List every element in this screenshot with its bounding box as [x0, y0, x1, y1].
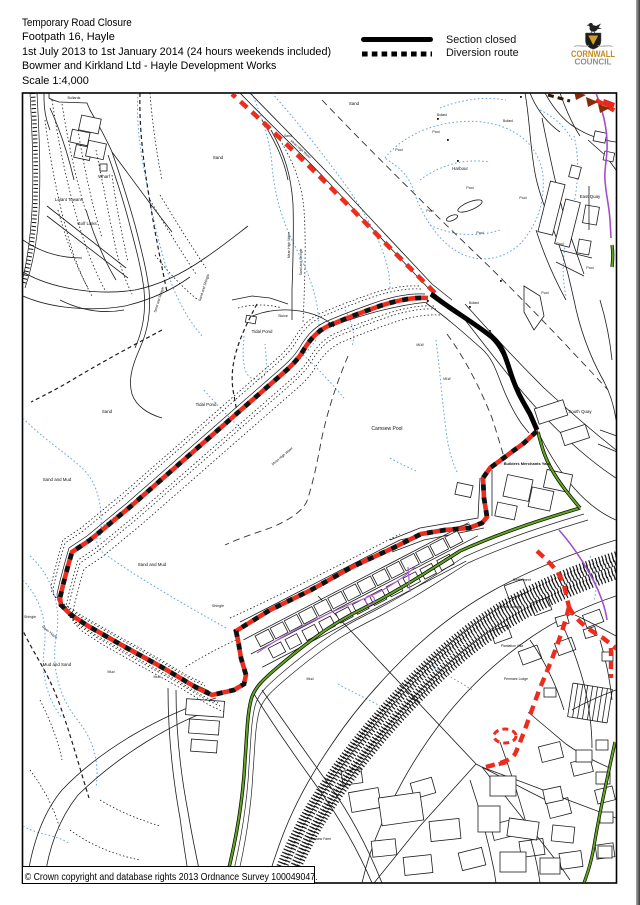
svg-text:Sand and Mud: Sand and Mud: [138, 562, 167, 567]
svg-text:Sand: Sand: [213, 155, 224, 160]
svg-text:Tidal Pond: Tidal Pond: [196, 402, 217, 407]
svg-text:South Quay: South Quay: [568, 409, 592, 414]
svg-text:Sluice: Sluice: [278, 314, 288, 318]
svg-text:Mud and Sand: Mud and Sand: [43, 662, 72, 667]
svg-text:Sand: Sand: [284, 134, 292, 138]
svg-text:Sand and Shingle: Sand and Shingle: [299, 249, 303, 276]
svg-text:Settlement: Settlement: [513, 578, 532, 582]
svg-text:Pool: Pool: [541, 291, 548, 295]
svg-text:Tidal Pond: Tidal Pond: [252, 329, 273, 334]
svg-text:MLW: MLW: [416, 343, 423, 347]
svg-text:MLW: MLW: [443, 377, 450, 381]
svg-text:Pool: Pool: [586, 266, 593, 270]
svg-text:Shingle: Shingle: [24, 615, 36, 619]
svg-text:Mud: Mud: [154, 675, 161, 679]
svg-text:Sand: Sand: [102, 409, 113, 414]
svg-text:Pool: Pool: [395, 148, 402, 152]
svg-text:Bollards: Bollards: [68, 96, 81, 100]
svg-text:Harbour: Harbour: [452, 166, 468, 171]
svg-text:Bollard: Bollard: [503, 119, 513, 123]
svg-text:Sand and Mud: Sand and Mud: [43, 477, 72, 482]
svg-text:Penmare Lodge: Penmare Lodge: [504, 677, 528, 681]
svg-text:Mud: Mud: [307, 677, 314, 681]
svg-text:East Quay: East Quay: [580, 194, 601, 199]
svg-text:Wharf: Wharf: [98, 174, 110, 179]
svg-text:Sand: Sand: [349, 101, 360, 106]
svg-text:Pool: Pool: [466, 186, 473, 190]
svg-text:Plantation Villa: Plantation Villa: [501, 644, 523, 648]
svg-text:Carnsew Pool: Carnsew Pool: [371, 426, 402, 432]
svg-text:Golf Links: Golf Links: [77, 221, 97, 226]
svg-text:Pool: Pool: [476, 231, 483, 235]
svg-text:Pool: Pool: [432, 130, 439, 134]
svg-text:Bollard: Bollard: [469, 301, 479, 305]
svg-text:Mud: Mud: [108, 670, 115, 674]
svg-text:Pool: Pool: [426, 209, 433, 213]
svg-text:Pool: Pool: [556, 242, 563, 246]
svg-text:Builders Merchants Yard: Builders Merchants Yard: [504, 461, 551, 466]
svg-text:Bollard: Bollard: [437, 113, 447, 117]
svg-text:Carnsew Farm: Carnsew Farm: [309, 837, 331, 841]
svg-text:Mean High Water: Mean High Water: [287, 231, 291, 258]
svg-text:Lelant Towans: Lelant Towans: [55, 197, 84, 202]
svg-text:Shingle: Shingle: [212, 604, 224, 608]
svg-text:Riviere Cottage: Riviere Cottage: [498, 605, 521, 609]
svg-text:Pool: Pool: [519, 196, 526, 200]
